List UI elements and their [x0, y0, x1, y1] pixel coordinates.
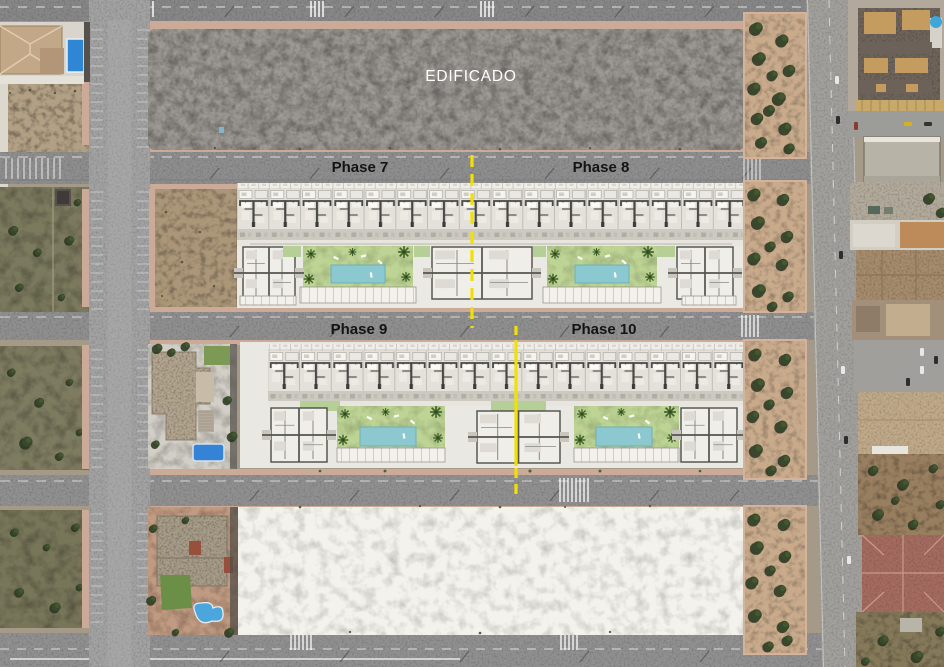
svg-text:EDIFICADO: EDIFICADO	[425, 68, 517, 85]
svg-text:Phase 7: Phase 7	[332, 159, 389, 176]
svg-text:Phase 10: Phase 10	[571, 321, 636, 338]
svg-text:Phase 8: Phase 8	[573, 159, 630, 176]
svg-text:Phase 9: Phase 9	[331, 321, 388, 338]
